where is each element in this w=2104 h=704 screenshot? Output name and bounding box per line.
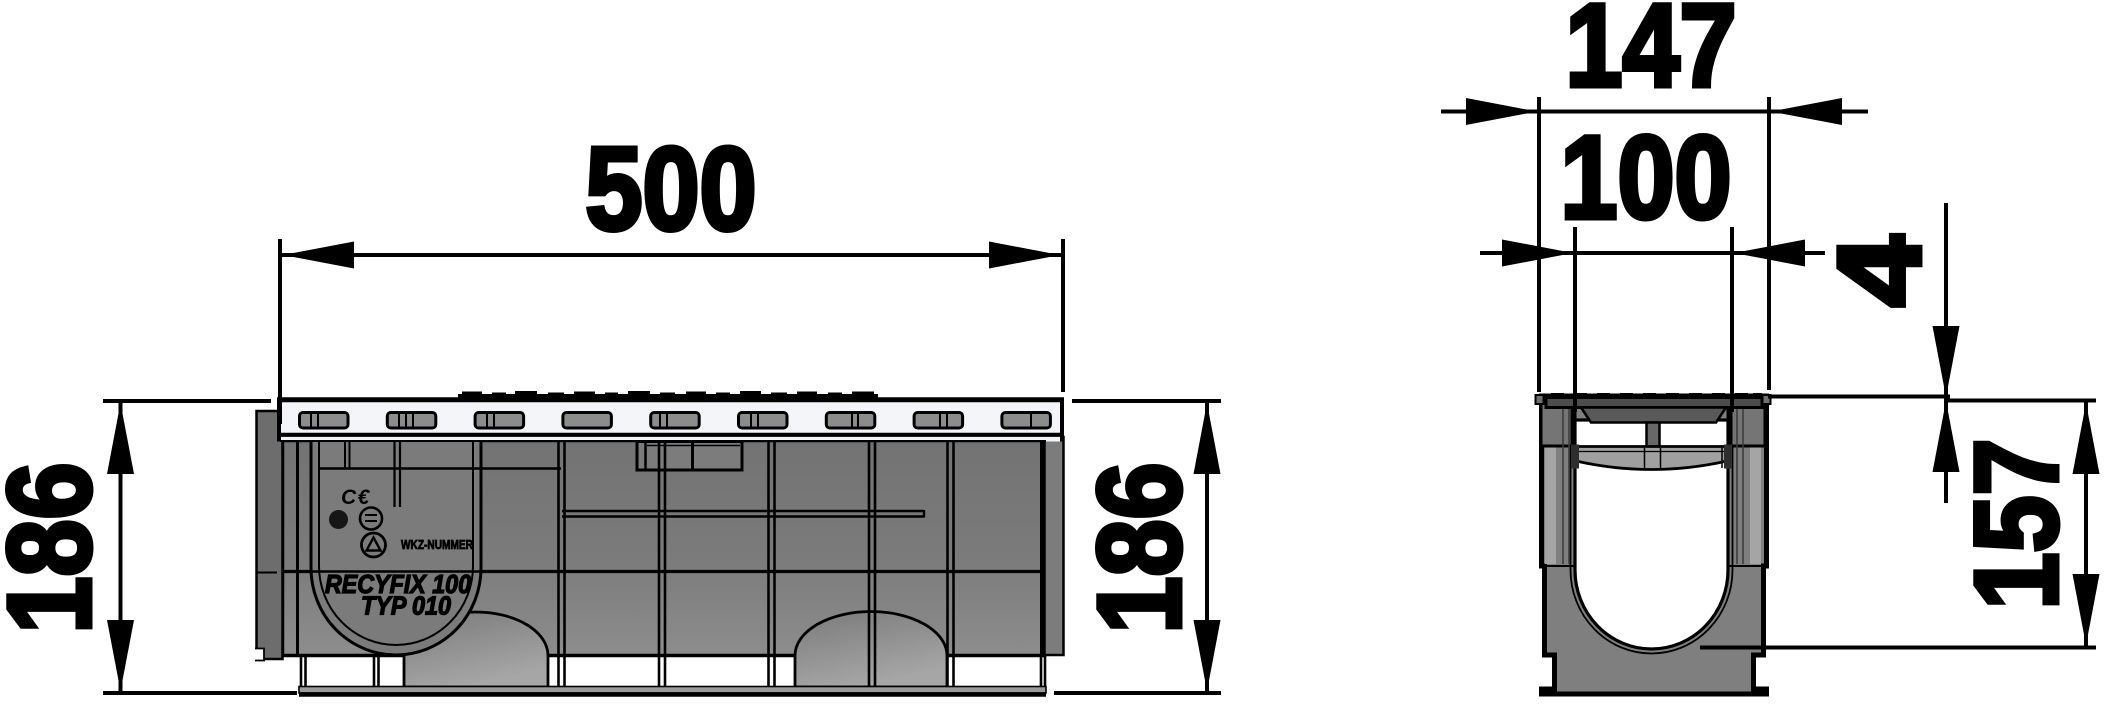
svg-text:186: 186 [1074,462,1205,633]
svg-text:4: 4 [1814,235,1945,307]
svg-text:157: 157 [1951,438,2082,609]
svg-text:500: 500 [585,124,756,255]
svg-text:186: 186 [0,462,116,633]
svg-text:WKZ-NUMMER: WKZ-NUMMER [401,538,473,552]
svg-text:C€: C€ [341,486,371,509]
svg-text:TYP 010: TYP 010 [361,593,451,621]
svg-text:100: 100 [1560,112,1731,243]
svg-text:147: 147 [1565,0,1736,112]
